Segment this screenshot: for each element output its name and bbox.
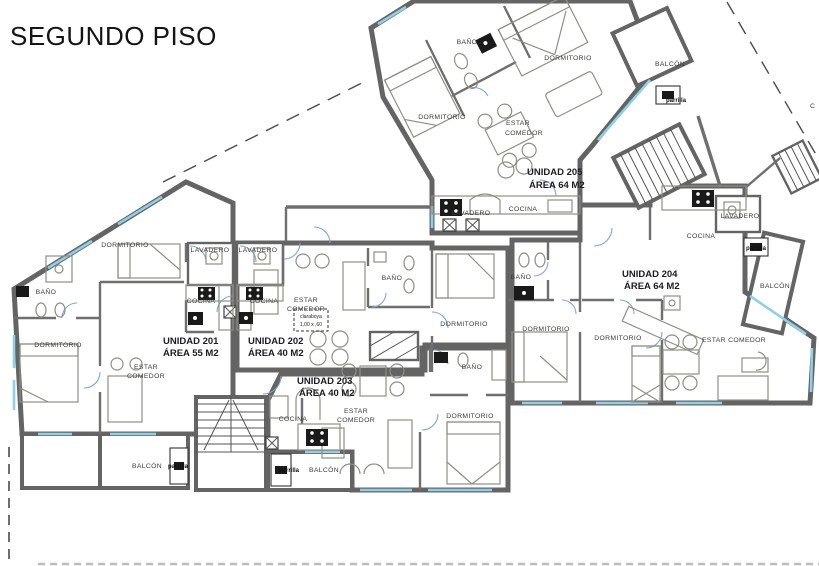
room-label-lavadero-202: LAVADERO: [239, 247, 278, 254]
room-label-comedor-201: COMEDOR: [127, 373, 165, 380]
claraboya-size: 1,00 x ,60: [300, 322, 322, 328]
room-label-comedor-203: COMEDOR: [337, 417, 375, 424]
room-label-bano-204: BAÑO: [511, 272, 532, 281]
room-label-dormitorio-202: DORMITORIO: [440, 321, 488, 328]
room-label-estar-202: ESTAR: [294, 297, 318, 304]
stair-south: [196, 397, 266, 490]
room-label-bano-201: BAÑO: [36, 287, 57, 296]
terrace-201-room: [22, 434, 100, 488]
stair-north: [613, 124, 704, 207]
room-label-balcon-201: BALCÓN: [132, 461, 162, 470]
unit-203-area: ÁREA 40 M2: [299, 388, 355, 399]
floor-plan-drawing: SEGUNDO PISO C DORMITORIO BAÑO DORMITORI…: [0, 0, 819, 566]
wall-link-e: [745, 158, 780, 188]
room-label-estar-comedor-204: ESTAR COMEDOR: [702, 337, 766, 344]
floor-plan-page: SEGUNDO PISO C DORMITORIO BAÑO DORMITORI…: [0, 0, 819, 566]
room-label-dormitorio-205a: DORMITORIO: [544, 55, 592, 62]
room-label-estar-201: ESTAR: [134, 364, 158, 371]
room-label-dormitorio-201b: DORMITORIO: [34, 342, 82, 349]
room-label-bano-205: BAÑO: [457, 37, 478, 46]
page-title: SEGUNDO PISO: [10, 21, 217, 51]
air-shaft: [370, 332, 418, 360]
room-label-dormitorio-203: DORMITORIO: [446, 413, 494, 420]
balcony-205-room: [613, 8, 692, 86]
room-label-estar-205: ESTAR: [506, 120, 530, 127]
room-label-bano-202: BAÑO: [382, 273, 403, 282]
room-label-parrilla-203: parrilla: [279, 468, 300, 474]
bed-203: [447, 422, 500, 484]
corridor: [286, 207, 430, 243]
unit-202-area: ÁREA 40 M2: [248, 348, 304, 359]
room-label-dormitorio-204b: DORMITORIO: [594, 335, 642, 342]
room-label-dormitorio-201a: DORMITORIO: [101, 242, 149, 249]
boundary-letter: C: [810, 103, 815, 110]
room-label-parrilla-204: parrilla: [746, 246, 767, 252]
room-label-dormitorio-204a: DORMITORIO: [522, 326, 570, 333]
dining-204: [663, 335, 768, 400]
room-label-balcon-204: BALCÓN: [760, 281, 790, 290]
bed-202: [436, 254, 494, 298]
room-label-parrilla-201: parrilla: [168, 464, 189, 470]
kitchen-202: [237, 285, 283, 330]
bed-205b: [385, 57, 460, 138]
unit-205-area: ÁREA 64 M2: [529, 180, 585, 191]
unit-204-name: UNIDAD 204: [622, 269, 678, 280]
room-label-comedor-202: COMEDOR: [287, 306, 325, 313]
claraboya-label: claraboya: [300, 314, 322, 320]
room-label-bano-203: BAÑO: [462, 362, 483, 371]
room-label-lavadero-204: LAVADERO: [721, 213, 760, 220]
bed-201a: [118, 244, 180, 278]
bed-204b: [632, 346, 660, 402]
unit-203-name: UNIDAD 203: [297, 376, 352, 387]
room-label-comedor-205: COMEDOR: [505, 130, 543, 137]
bath-202: [374, 252, 414, 293]
unit-202-name: UNIDAD 202: [248, 336, 303, 347]
room-label-balcon-205: BALCÓN: [655, 59, 685, 68]
room-label-dormitorio-205b: DORMITORIO: [418, 114, 466, 121]
sofa-205: [545, 71, 603, 118]
room-label-cocina-202: COCINA: [250, 298, 279, 305]
room-label-lavadero-205: LAVADERO: [452, 210, 491, 217]
unit-205-name: UNIDAD 205: [527, 167, 583, 178]
room-label-parrilla-205: parrilla: [666, 98, 687, 104]
room-label-cocina-201: COCINA: [187, 298, 216, 305]
unit-201-name: UNIDAD 201: [163, 336, 219, 347]
bed-204a: [512, 332, 567, 382]
room-label-lavadero-201: LAVADERO: [191, 247, 230, 254]
room-label-balcon-203: BALCÓN: [309, 465, 339, 474]
room-label-estar-203: ESTAR: [344, 408, 368, 415]
bath-201: [16, 256, 72, 317]
stool-205a: [498, 162, 514, 178]
room-label-cocina-204: COCINA: [687, 233, 716, 240]
room-label-cocina-203: COCINA: [279, 416, 308, 423]
bed-201b: [20, 344, 78, 402]
room-label-cocina-205: COCINA: [509, 206, 538, 213]
unit-201-area: ÁREA 55 M2: [163, 348, 219, 359]
unit-204-area: ÁREA 64 M2: [624, 281, 680, 292]
